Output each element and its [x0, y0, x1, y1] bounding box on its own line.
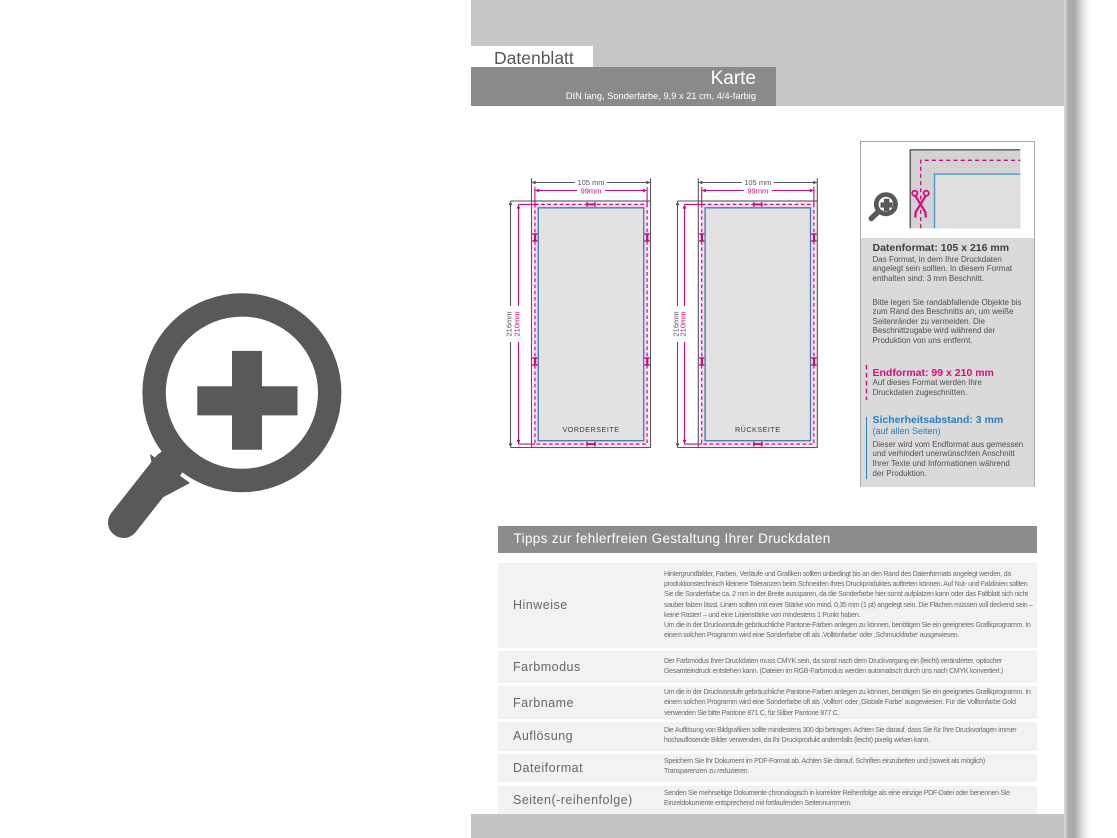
svg-text:RÜCKSEITE: RÜCKSEITE — [735, 425, 781, 434]
svg-text:210mm: 210mm — [679, 311, 688, 336]
svg-text:99mm: 99mm — [747, 186, 768, 195]
svg-text:VORDERSEITE: VORDERSEITE — [562, 425, 619, 434]
svg-text:99mm: 99mm — [581, 186, 602, 195]
svg-text:210mm: 210mm — [513, 311, 522, 336]
